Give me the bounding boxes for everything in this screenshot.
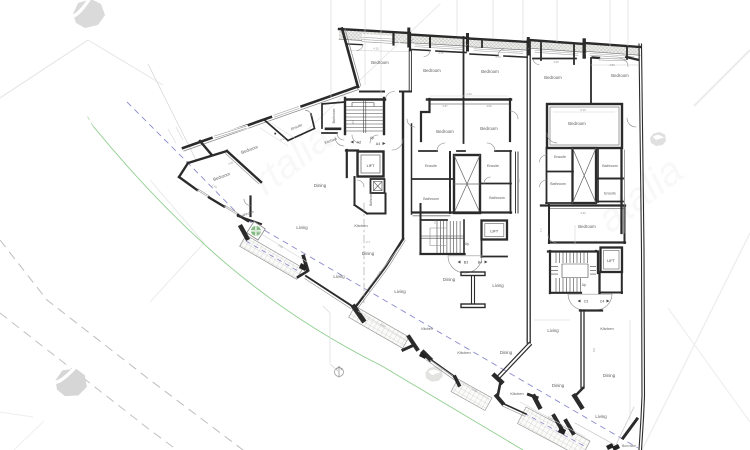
svg-text:Ensuite: Ensuite [425, 164, 437, 168]
svg-text:Bedroom: Bedroom [578, 224, 596, 229]
svg-text:Bedroom: Bedroom [568, 121, 586, 126]
svg-text:Dining: Dining [500, 350, 513, 355]
svg-text:Living: Living [296, 225, 308, 230]
svg-text:Kitchen: Kitchen [600, 326, 613, 331]
svg-text:Ensuite: Ensuite [487, 164, 499, 168]
svg-text:Living: Living [333, 274, 345, 279]
svg-text:Up: Up [465, 242, 470, 246]
svg-text:3.65: 3.65 [553, 60, 559, 64]
svg-text:Kitchen: Kitchen [354, 223, 367, 228]
svg-text:3.80: 3.80 [609, 63, 615, 67]
svg-text:Up: Up [582, 283, 587, 287]
svg-text:4.87: 4.87 [442, 104, 448, 108]
svg-text:Bathroom: Bathroom [550, 182, 566, 186]
svg-text:Bathroom: Bathroom [602, 164, 618, 168]
svg-text:Bedroom: Bedroom [480, 126, 498, 131]
svg-text:Box room: Box room [622, 444, 636, 448]
svg-text:Bedroom: Bedroom [544, 75, 562, 80]
svg-text:2.40: 2.40 [466, 92, 472, 96]
svg-text:6.10: 6.10 [580, 108, 586, 112]
svg-text:2.1: 2.1 [366, 240, 370, 244]
svg-text:Bathroom: Bathroom [369, 192, 373, 206]
svg-text:C3: C3 [584, 300, 589, 304]
svg-text:LIFT: LIFT [607, 259, 615, 263]
svg-text:Living: Living [492, 283, 504, 288]
svg-text:Dining: Dining [603, 373, 616, 378]
svg-text:B4: B4 [478, 261, 482, 265]
svg-text:Bathroom: Bathroom [332, 108, 336, 123]
svg-text:4.1: 4.1 [539, 228, 543, 232]
svg-text:3.55: 3.55 [438, 51, 444, 55]
svg-text:Dining: Dining [552, 383, 565, 388]
svg-text:Up: Up [370, 136, 375, 140]
svg-text:4.10: 4.10 [373, 47, 379, 51]
svg-text:Bedroom: Bedroom [611, 73, 629, 78]
svg-text:A2: A2 [357, 141, 361, 145]
svg-text:Living: Living [595, 414, 607, 419]
svg-text:Dining: Dining [443, 277, 456, 282]
svg-text:B3: B3 [464, 261, 468, 265]
svg-text:Bathroom: Bathroom [489, 196, 505, 200]
svg-text:Bedroom: Bedroom [436, 129, 454, 134]
svg-text:LIFT: LIFT [367, 164, 375, 168]
svg-text:Kitchen: Kitchen [421, 327, 432, 331]
svg-text:Bathroom: Bathroom [423, 197, 439, 201]
svg-text:4.32: 4.32 [580, 211, 586, 215]
svg-text:Bedroom: Bedroom [481, 69, 499, 74]
svg-text:Ensuite: Ensuite [604, 192, 616, 196]
svg-text:A4: A4 [376, 142, 380, 146]
svg-text:Living: Living [394, 289, 406, 294]
svg-text:Ensuite: Ensuite [554, 155, 566, 159]
svg-text:Dining: Dining [362, 251, 375, 256]
svg-text:4.80: 4.80 [486, 104, 492, 108]
svg-text:5.8: 5.8 [592, 348, 596, 352]
svg-text:3.2: 3.2 [433, 220, 437, 224]
svg-text:C4: C4 [600, 300, 605, 304]
svg-text:Living: Living [547, 328, 559, 333]
svg-text:Kitchen: Kitchen [457, 350, 470, 355]
svg-text:Bedroom: Bedroom [371, 60, 389, 65]
svg-text:Kitchen: Kitchen [510, 391, 523, 396]
svg-text:2.9: 2.9 [517, 178, 521, 182]
svg-text:3.70: 3.70 [495, 55, 501, 59]
svg-text:Bedroom: Bedroom [423, 68, 441, 73]
svg-text:LIFT: LIFT [490, 230, 498, 234]
svg-text:Dining: Dining [314, 183, 327, 188]
